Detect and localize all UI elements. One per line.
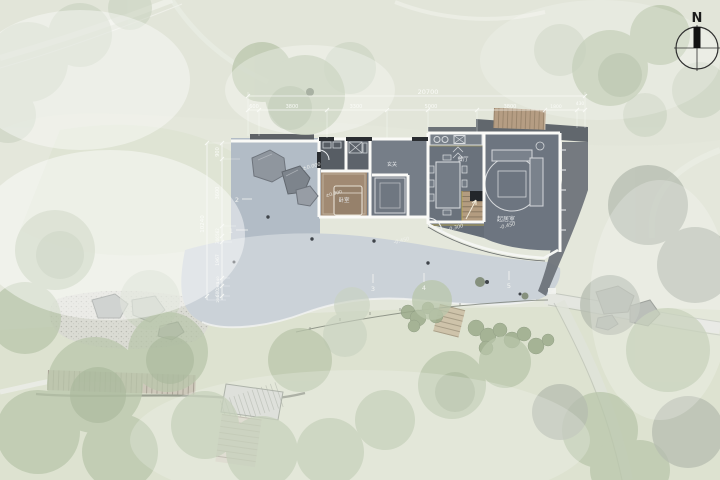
dim-left-seg-4: 306 bbox=[215, 236, 220, 244]
dim-top-seg-5: 3800 bbox=[504, 104, 517, 110]
room-label-bedroom: 卧室 bbox=[338, 196, 350, 204]
grid-label-1: 1 bbox=[229, 227, 233, 235]
dim-top-seg-6: 1800 bbox=[550, 104, 562, 110]
dim-top-seg-2: 3800 bbox=[286, 104, 299, 110]
dim-left-seg-1: 900 bbox=[215, 147, 221, 157]
dim-left-seg-5: 1967 bbox=[215, 254, 221, 266]
bath-room bbox=[347, 140, 369, 170]
grid-label-2: 2 bbox=[235, 196, 239, 204]
room-label-entry: 玄关 bbox=[387, 161, 397, 168]
grid-label-5: 5 bbox=[507, 282, 511, 290]
grid-label-3: 3 bbox=[371, 285, 375, 293]
north-label: N bbox=[692, 11, 703, 26]
dim-left-seg-9: 200 bbox=[215, 295, 220, 303]
dim-top-seg-1: 600 bbox=[249, 104, 259, 110]
dim-top-overall: 20700 bbox=[418, 88, 439, 96]
staircase bbox=[462, 191, 483, 222]
dim-left-overall: 10240 bbox=[200, 215, 206, 233]
dim-top-seg-4: 5000 bbox=[425, 104, 438, 110]
compass-needle bbox=[694, 27, 701, 48]
grid-label-4: 4 bbox=[422, 284, 426, 292]
dim-top-seg-7: 430 bbox=[576, 101, 585, 107]
dim-top-seg-3: 3300 bbox=[350, 104, 363, 110]
tatami-room bbox=[372, 175, 408, 216]
dim-left-seg-2: 3600 bbox=[215, 187, 221, 200]
dim-left-seg-7: 265 bbox=[215, 282, 220, 290]
dim-left-seg-3: 562 bbox=[215, 228, 220, 236]
wood-deck bbox=[494, 118, 546, 120]
site-plan-drawing: 20700 600 3800 3300 5000 3800 1800 430 1… bbox=[0, 0, 720, 480]
site-plan-canvas: 20700 600 3800 3300 5000 3800 1800 430 1… bbox=[0, 0, 720, 480]
room-label-dining: 餐厅 bbox=[457, 155, 469, 163]
